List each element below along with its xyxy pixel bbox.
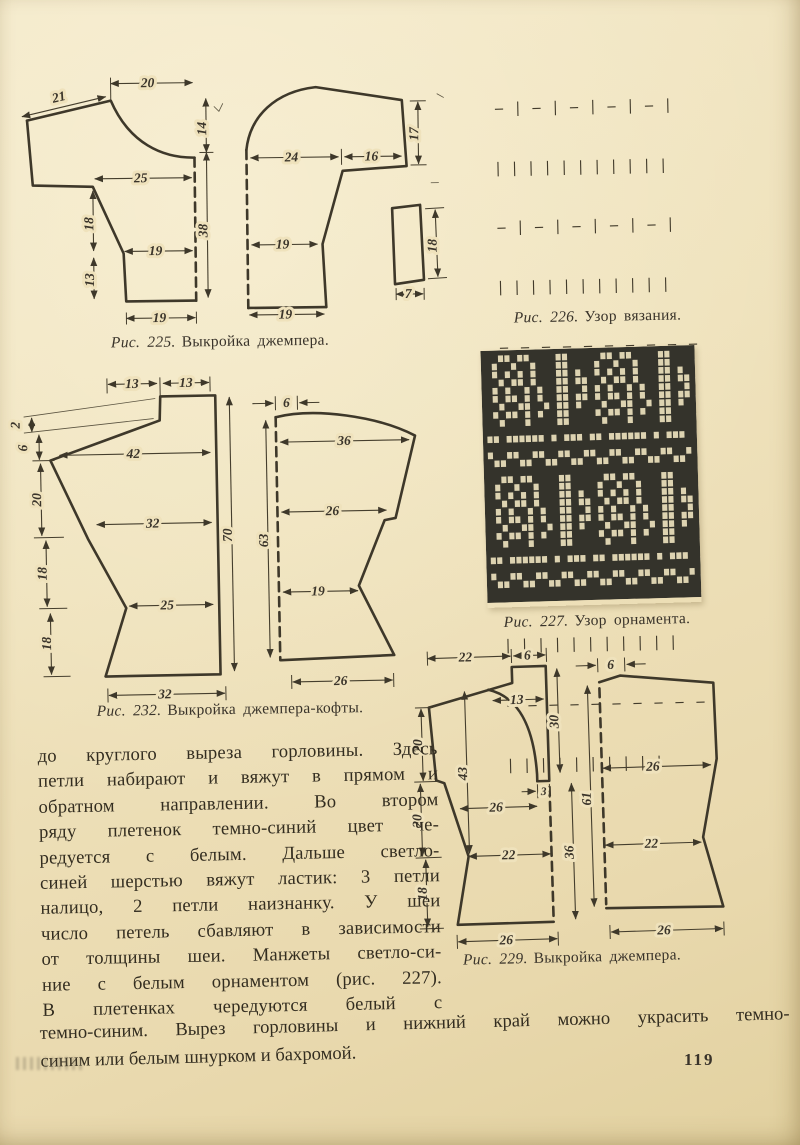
fig229-caption-number: Рис. 229. [463,950,528,969]
svg-text:26: 26 [498,932,513,947]
svg-text:20: 20 [140,75,155,90]
fig232-back-piece-outline [49,395,220,677]
print-bleed-smudge [16,1057,82,1070]
svg-text:18: 18 [39,637,54,651]
svg-text:6: 6 [607,657,614,672]
svg-text:13: 13 [510,692,524,707]
svg-text:30: 30 [546,714,561,729]
svg-text:19: 19 [149,243,163,258]
svg-text:14: 14 [194,121,209,135]
fig227-caption-text: Узор орнамента. [574,610,690,629]
svg-text:19: 19 [276,236,290,251]
fig225-dimension-labels: 21 20 14 38 25 18 19 13 19 24 16 17 19 1… [49,72,440,327]
svg-text:13: 13 [125,376,139,391]
svg-text:6: 6 [15,444,30,451]
svg-text:36: 36 [561,845,576,860]
svg-text:43: 43 [455,766,470,781]
fig229-front-piece-outline [428,666,554,926]
svg-text:26: 26 [488,799,503,814]
svg-text:25: 25 [133,170,148,185]
fig225-caption: Рис. 225.Выкройка джемпера. [55,331,385,353]
knit-row: – | – | – | – | – | [495,95,685,119]
svg-text:70: 70 [220,528,235,542]
svg-text:3: 3 [540,786,547,798]
svg-text:38: 38 [195,223,210,238]
svg-text:18: 18 [81,217,96,231]
svg-text:42: 42 [125,446,140,461]
svg-text:19: 19 [311,583,325,598]
knit-row: | | | | | | | | | | | [496,155,686,179]
fig225-cuff-piece-outline [392,205,424,284]
svg-text:17: 17 [406,126,421,141]
svg-text:63: 63 [256,533,271,547]
fig226-caption: Рис. 226.Узор вязания. [490,306,705,328]
svg-text:20: 20 [29,493,44,508]
svg-text:22: 22 [501,847,516,862]
svg-text:26: 26 [333,673,348,688]
svg-text:61: 61 [579,792,594,806]
fig225-back-piece-outline [27,100,196,303]
svg-text:2: 2 [8,421,23,429]
fig232-front-piece-outline [276,411,420,660]
fig225-pattern-diagram: 21 20 14 38 25 18 19 13 19 24 16 17 19 1… [13,65,476,336]
svg-text:6: 6 [283,395,290,410]
fig232-dimension-labels: 13 13 2 6 42 20 32 18 25 18 70 32 6 36 2… [7,372,356,705]
knit-row: | | | | | | | | | | | [499,274,689,298]
svg-text:26: 26 [325,503,340,518]
fig232-caption: Рис. 232.Выкройка джемпера-кофты. [55,699,405,722]
svg-text:6: 6 [524,647,531,662]
svg-text:32: 32 [145,515,160,530]
fig229-dimension-lines [409,643,724,950]
svg-text:25: 25 [159,597,174,612]
fig232-caption-number: Рис. 232. [97,702,162,720]
knit-row: – | – | – | – | – | [497,214,687,238]
svg-text:22: 22 [643,835,658,850]
svg-text:26: 26 [656,922,671,937]
svg-text:19: 19 [279,306,293,321]
ornament-grid [480,345,701,608]
svg-text:22: 22 [457,649,472,664]
svg-text:19: 19 [153,310,167,325]
fig229-pattern-diagram: 22 6 13 30 43 3 26 22 36 20 20 18 26 6 2… [405,638,750,968]
fig225-dimension-lines [21,74,447,326]
svg-text:26: 26 [645,758,660,773]
fig225-front-piece-outline [246,86,409,308]
svg-text:32: 32 [157,686,172,701]
body-text-column: до круглого выреза горловины. Здесь петл… [37,736,442,1023]
svg-text:13: 13 [179,375,193,390]
fig229-caption-text: Выкройка джемпера. [533,946,681,967]
fig225-caption-text: Выкройка джемпера. [182,332,329,351]
svg-text:13: 13 [82,273,97,287]
svg-text:18: 18 [424,239,439,253]
page-number: 119 [684,1050,715,1070]
fig227-ornament-chart [480,345,701,608]
fig232-pattern-diagram: 13 13 2 6 42 20 32 18 25 18 70 32 6 36 2… [5,369,466,713]
book-page-scan: 21 20 14 38 25 18 19 13 19 24 16 17 19 1… [0,0,800,1145]
fig232-caption-text: Выкройка джемпера-кофты. [167,699,363,719]
svg-text:36: 36 [336,433,351,448]
fig227-caption-number: Рис. 227. [504,613,569,631]
fig229-back-piece-outline [599,673,723,911]
svg-text:21: 21 [49,88,67,106]
svg-text:18: 18 [34,567,49,581]
fig226-caption-number: Рис. 226. [514,308,579,326]
fig225-caption-number: Рис. 225. [111,334,176,352]
svg-text:16: 16 [365,148,379,163]
fig226-caption-text: Узор вязания. [584,307,681,326]
svg-text:24: 24 [284,149,299,164]
